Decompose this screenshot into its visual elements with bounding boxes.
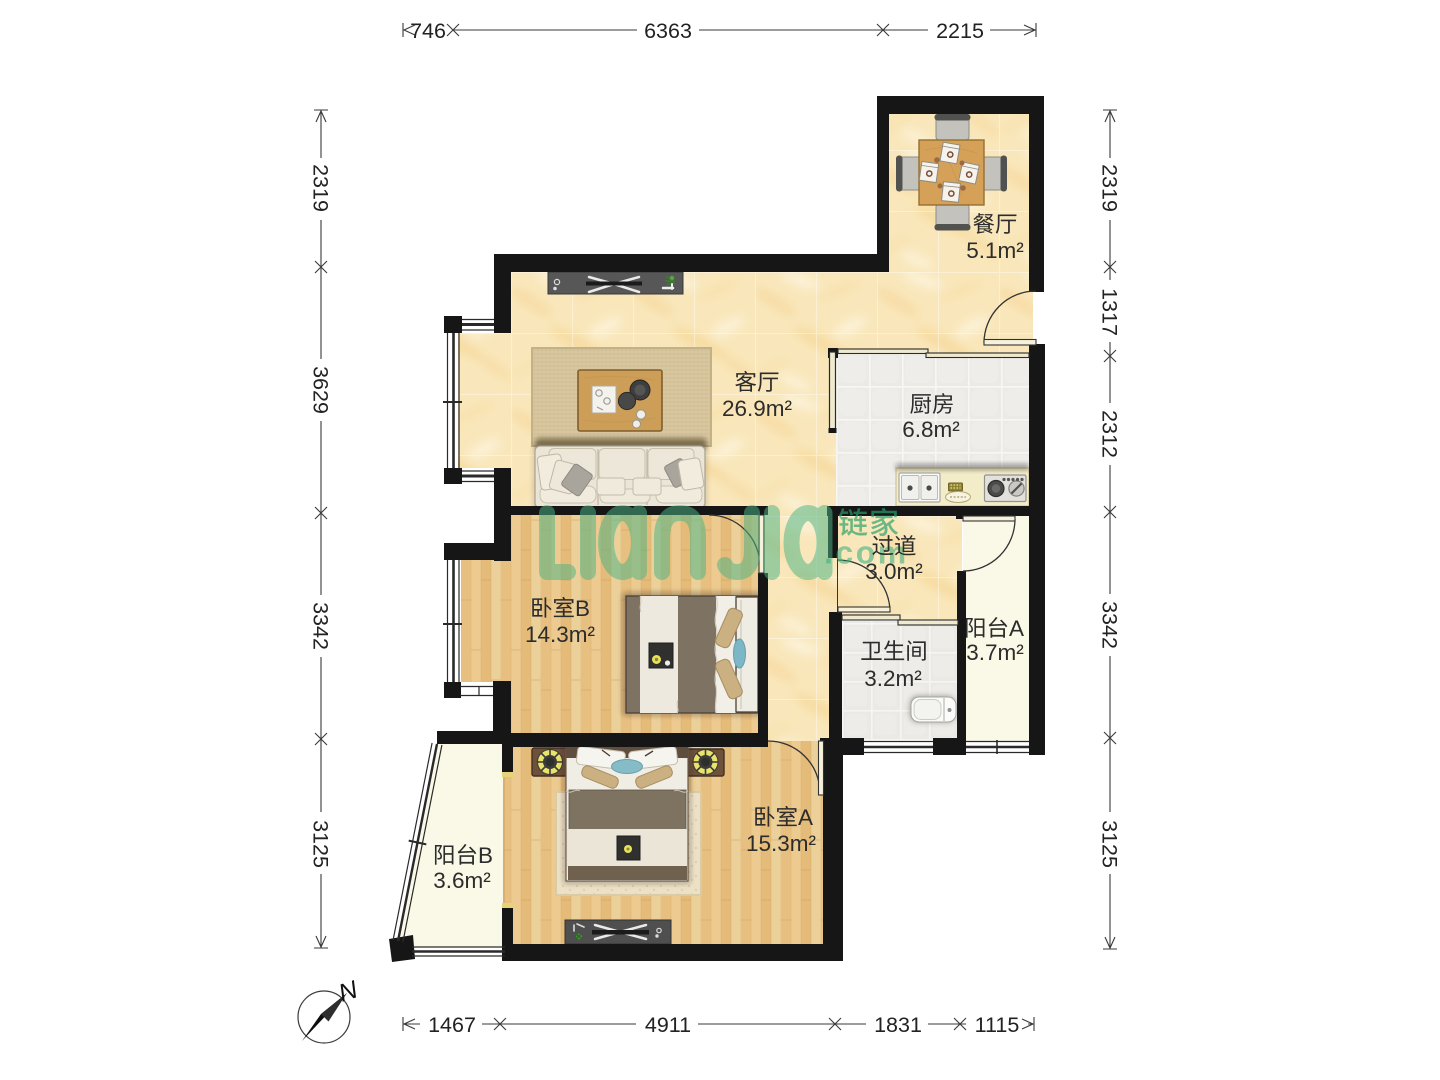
svg-text:3.2m²: 3.2m² <box>864 666 922 691</box>
svg-text:1831: 1831 <box>874 1013 922 1037</box>
svg-text:2215: 2215 <box>936 19 984 43</box>
svg-text:5.1m²: 5.1m² <box>966 238 1024 263</box>
svg-text:2319: 2319 <box>1098 164 1122 212</box>
svg-text:3.7m²: 3.7m² <box>966 640 1024 665</box>
svg-text:1115: 1115 <box>975 1013 1020 1037</box>
svg-text:1467: 1467 <box>428 1013 476 1037</box>
svg-text:3342: 3342 <box>1098 601 1122 649</box>
svg-text:1317: 1317 <box>1098 288 1122 336</box>
svg-text:3.0m²: 3.0m² <box>865 559 923 584</box>
svg-text:2312: 2312 <box>1098 410 1122 458</box>
svg-text:15.3m²: 15.3m² <box>746 831 817 856</box>
svg-text:6.8m²: 6.8m² <box>902 417 960 442</box>
svg-text:3125: 3125 <box>309 820 333 868</box>
svg-text:B: B <box>478 843 493 868</box>
svg-text:2319: 2319 <box>309 164 333 212</box>
svg-text:3342: 3342 <box>309 602 333 650</box>
svg-text:3125: 3125 <box>1098 820 1122 868</box>
svg-text:14.3m²: 14.3m² <box>525 622 596 647</box>
svg-text:6363: 6363 <box>644 19 692 43</box>
svg-text:746: 746 <box>410 19 446 43</box>
svg-text:A: A <box>798 805 813 830</box>
svg-text:4911: 4911 <box>645 1013 691 1037</box>
svg-text:B: B <box>575 596 590 621</box>
svg-text:A: A <box>1009 616 1024 641</box>
svg-text:3.6m²: 3.6m² <box>433 868 491 893</box>
svg-text:26.9m²: 26.9m² <box>722 396 793 421</box>
svg-text:3629: 3629 <box>309 366 333 414</box>
